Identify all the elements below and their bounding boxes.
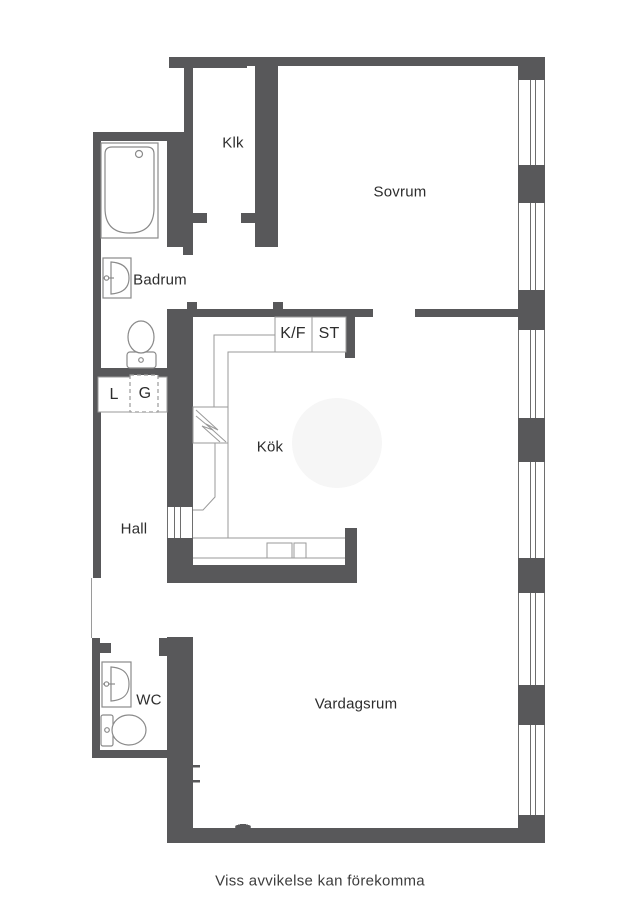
window-pane bbox=[519, 593, 545, 685]
room-label-hall: Hall bbox=[121, 521, 148, 538]
radiator-tick bbox=[193, 780, 200, 783]
dining-table-shape bbox=[292, 398, 382, 488]
room-label-vardagsrum: Vardagsrum bbox=[315, 696, 398, 713]
disclaimer-text: Viss avvikelse kan förekomma bbox=[215, 873, 425, 890]
wardrobe-boxes bbox=[98, 375, 167, 412]
room-label-wc: WC bbox=[136, 692, 161, 709]
wc-toilet-icon bbox=[101, 715, 146, 746]
label-linen-closet: L bbox=[109, 386, 118, 404]
room-label-kok: Kök bbox=[257, 439, 283, 456]
window-pane bbox=[519, 80, 545, 165]
electrical-panel-icon bbox=[193, 407, 228, 443]
radiator-tick bbox=[193, 765, 200, 768]
room-label-badrum: Badrum bbox=[133, 272, 187, 289]
badrum-toilet-icon bbox=[127, 321, 156, 368]
room-label-klk: Klk bbox=[222, 135, 243, 152]
floorplan-svg bbox=[0, 0, 636, 900]
badrum-sink-icon bbox=[103, 258, 131, 298]
bathtub-icon bbox=[101, 143, 158, 238]
window-pane bbox=[519, 725, 545, 815]
threshold-mark bbox=[235, 824, 251, 830]
window-pane bbox=[519, 203, 545, 290]
wc-sink-icon bbox=[102, 662, 131, 707]
window-pane bbox=[519, 462, 545, 558]
label-fridge-freezer: K/F bbox=[280, 325, 306, 343]
room-label-sovrum: Sovrum bbox=[374, 184, 427, 201]
stove-icon bbox=[267, 543, 306, 558]
window-pane bbox=[519, 330, 545, 418]
label-wardrobe: G bbox=[139, 385, 152, 403]
floorplan: Klk Sovrum Badrum Kök Hall WC Vardagsrum… bbox=[0, 0, 636, 900]
label-cleaning-closet: ST bbox=[319, 325, 340, 343]
kitchen-hall-opening bbox=[168, 507, 193, 538]
